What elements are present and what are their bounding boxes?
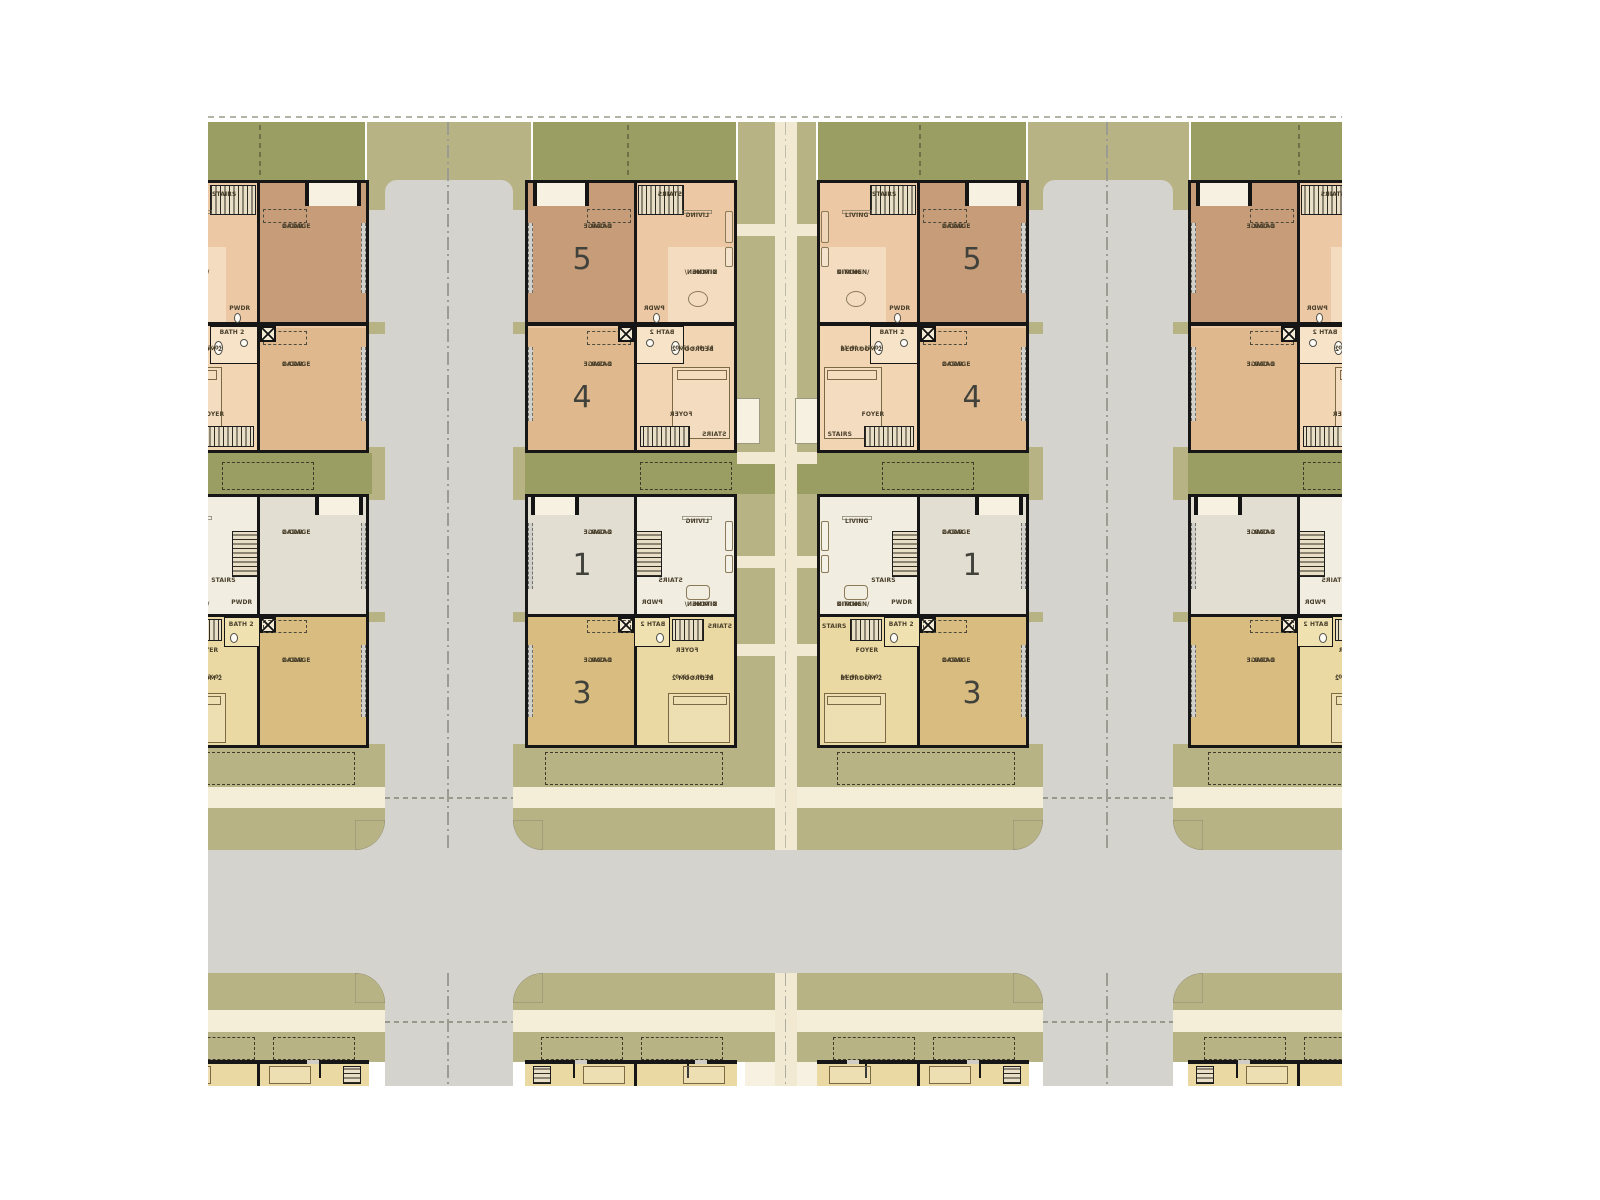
stairs-unit1	[1299, 531, 1325, 577]
paseo-branch-walk-east-0	[797, 224, 817, 236]
lot-line-dashed-1	[627, 125, 629, 177]
foyer-label-line: FOYER	[676, 647, 699, 654]
building-block-upper-col1: STAIRSLIVINGKITCHEN/DININGPWDR2-CARGARAG…	[208, 180, 369, 453]
patio-mid-yard-3	[1303, 462, 1342, 490]
bedroom2-label-line: 14'-0" x 12'-0"	[208, 675, 221, 681]
crosswalk-dash-3	[1043, 1021, 1173, 1023]
bath2-label-line: BATH 2	[889, 621, 914, 628]
stairs-unit3	[672, 619, 704, 641]
unit4-garage-label-line: GARAGE	[583, 361, 612, 368]
unit5-garage-label-line: GARAGE	[1246, 223, 1275, 230]
garage5-storage	[263, 209, 307, 223]
door-gap-2	[307, 1060, 319, 1064]
garage5-door	[361, 223, 366, 293]
stairs-upper	[638, 185, 684, 215]
stairs-unit3	[208, 619, 222, 641]
stairs-lower-label-line: STAIRS	[702, 431, 726, 438]
garage-separation-wall	[634, 183, 637, 450]
lot-line-white-2	[1026, 122, 1028, 180]
garage5-storage	[923, 209, 967, 223]
unit3-garage-number: 3	[922, 679, 1022, 709]
powder-sink	[894, 313, 901, 323]
building-block-lower-col3: LIVINGSTAIRSKITCHEN/DININGPWDR2-CARGARAG…	[817, 494, 1029, 748]
street-a-centerline	[447, 122, 449, 850]
unit1-garage-number: 1	[922, 551, 1022, 581]
bed	[208, 693, 226, 743]
bedroom2-label-line: 14'-0" x 12'-0"	[673, 675, 714, 681]
unit4-garage-fill	[259, 328, 366, 450]
unit3-garage-label-line: GARAGE	[942, 657, 971, 664]
unit5-garage-label-line: GARAGE	[583, 223, 612, 230]
garage3-storage	[587, 620, 631, 633]
bath2-label-line: BATH 2	[1313, 329, 1338, 336]
lot-line-white-3	[1189, 122, 1191, 180]
stairs-lower-label-line: STAIRS	[828, 431, 852, 438]
driveway-apron-2-1	[1026, 334, 1048, 447]
unit4-garage-fill	[1191, 328, 1298, 450]
chair	[725, 555, 733, 573]
door-gap-2	[1238, 1060, 1250, 1064]
stairs-unit1	[892, 531, 918, 577]
site-plan: STAIRSLIVINGKITCHEN/DININGPWDR2-CARGARAG…	[208, 113, 1342, 1086]
stairs-unit1-label-line: STAIRS	[871, 577, 895, 584]
unit5-kitchen-zone	[820, 247, 886, 325]
unit1-garage-label-line: GARAGE	[1246, 529, 1275, 536]
powder-sink	[1316, 313, 1323, 323]
unit3-garage-label-line: GARAGE	[282, 657, 311, 664]
driveway-apron-2-2	[1026, 500, 1048, 612]
bath2-label-line: BATH 2	[220, 329, 245, 336]
street-horizontal-pavement	[208, 850, 1342, 973]
sidewalk-north-0	[208, 787, 387, 808]
stairs-upper	[210, 185, 256, 215]
stairs-unit3-label-line: STAIRS	[822, 623, 846, 630]
stairs-upper	[1301, 185, 1342, 215]
stairs-lower	[640, 426, 690, 447]
door-gap-2	[967, 1060, 979, 1064]
door-gap-1	[847, 1060, 859, 1064]
lot-line-white-5	[816, 122, 818, 180]
bed-partial-2	[269, 1066, 311, 1084]
unit5-kitchen-zone	[208, 247, 226, 325]
kitchen-island	[686, 585, 710, 600]
powder-label-line: PWDR	[891, 599, 912, 606]
stairs-upper-label-line: STAIRS	[872, 191, 896, 198]
garage4-door	[1191, 347, 1196, 421]
living-label-line: LIVING	[845, 518, 869, 525]
crosswalk-dash-0	[385, 797, 513, 799]
patio-south-a-1	[541, 1037, 623, 1060]
building-block-upper-col4: STAIRSLIVINGKITCHEN/DININGPWDR2-CARGARAG…	[1188, 180, 1342, 453]
door-gap-1	[695, 1060, 707, 1064]
dining-table	[688, 291, 708, 307]
crosswalk-dash-2	[385, 1021, 513, 1023]
wall-stub-mid	[257, 1060, 260, 1086]
sidewalk-north-2	[1171, 787, 1342, 808]
bed-partial-1	[829, 1066, 871, 1084]
patio-mid-yard-1	[640, 462, 732, 490]
living-label: LIVING	[842, 210, 872, 214]
sofa	[725, 211, 733, 243]
unit5-kitchen-zone	[1331, 247, 1342, 325]
entry-porch-notch	[533, 183, 589, 206]
patio-south-b-0	[273, 1037, 355, 1060]
driveway-apron-0-2	[366, 500, 388, 612]
living-label: LIVING	[682, 210, 712, 214]
bedroom2-label-line: 14'-0" x 12'-0"	[1336, 675, 1342, 681]
patio-south-a-2	[833, 1037, 915, 1060]
building-block-south-col4	[1188, 1060, 1342, 1086]
kitchen-label-line: DINING	[692, 269, 717, 276]
street-b-pavement-south	[1043, 973, 1173, 1086]
bath2-sink	[230, 633, 238, 643]
stairs-partial	[533, 1066, 551, 1084]
stairs-partial	[1196, 1066, 1214, 1084]
wall-stub-b	[979, 1064, 981, 1078]
bedroom2-label-line: 11'-0" x 12'-0"	[208, 346, 221, 352]
lot-line-dashed-2	[919, 125, 921, 177]
kitchen-label-line: DINING	[837, 269, 862, 276]
wall-stub-mid	[634, 1060, 637, 1086]
front-wall	[208, 1060, 369, 1064]
garage3-door	[361, 645, 366, 717]
stairs-unit1-label-line: STAIRS	[658, 577, 682, 584]
bed-pillow	[208, 370, 217, 380]
paseo-centerline	[785, 122, 786, 850]
garage3-storage	[263, 620, 307, 633]
kitchen-label-line: DINING	[837, 601, 862, 608]
paseo-branch-walk-east-2	[797, 556, 817, 568]
kitchen-label-line: DINING	[692, 601, 717, 608]
unit3-garage-fill	[259, 617, 366, 745]
powder-label-line: PWDR	[644, 305, 665, 312]
stairs-partial	[1003, 1066, 1021, 1084]
unit5-garage-label-line: GARAGE	[282, 223, 311, 230]
unit1-garage-label-line: GARAGE	[583, 529, 612, 536]
wall-stub-b	[1236, 1064, 1238, 1078]
bedroom2-label-line: 11'-0" x 12'-0"	[1336, 346, 1342, 352]
chair	[821, 247, 829, 267]
unit5-garage-number: 5	[532, 245, 632, 275]
unit4-garage-label-line: GARAGE	[1246, 361, 1275, 368]
patio-north-band-0	[208, 752, 355, 785]
sidewalk-south-2	[1171, 1010, 1342, 1032]
street-b-centerline-south	[1106, 973, 1108, 1086]
entry-porch-notch	[975, 497, 1023, 515]
foyer-label-line: FOYER	[1333, 411, 1342, 418]
bed-pillow	[673, 696, 727, 705]
driveway-apron-0-0	[366, 210, 388, 322]
powder-label-line: PWDR	[642, 599, 663, 606]
bed-pillow	[1336, 696, 1342, 705]
kitchen-label-line: KITCHEN/	[208, 269, 209, 276]
chair	[725, 247, 733, 267]
bath2-label-line: BATH 2	[640, 621, 665, 628]
street-a-pavement	[385, 180, 513, 850]
paseo-branch-walk-west-0	[737, 224, 775, 236]
powder-sink	[653, 313, 660, 323]
bedroom2-label-line: 11'-0" x 12'-0"	[673, 346, 714, 352]
stairs-unit3	[1335, 619, 1342, 641]
garage1-door	[361, 523, 366, 589]
front-wall	[1188, 1060, 1342, 1064]
garage-separation-wall	[917, 183, 920, 450]
lot-line-white-4	[736, 122, 738, 180]
patio-north-band-3	[1208, 752, 1342, 785]
bath2-sink	[646, 339, 654, 347]
foyer-label-line: FOYER	[670, 411, 693, 418]
stairs-upper-label-line: STAIRS	[658, 191, 682, 198]
living-label-line: LIVING	[208, 212, 209, 219]
unit3-garage-number: 3	[532, 679, 632, 709]
unit3-garage-label-line: GARAGE	[583, 657, 612, 664]
bed	[1331, 693, 1342, 743]
chase-xbox	[260, 326, 276, 342]
street-a-pavement-south	[385, 973, 513, 1086]
stairs-unit3	[850, 619, 882, 641]
bath2-label-line: BATH 2	[880, 329, 905, 336]
entry-porch-notch	[1194, 497, 1242, 515]
bedroom2-label-line: 14'-0" x 12'-0"	[840, 675, 881, 681]
bath2-label-line: BATH 2	[229, 621, 254, 628]
wall-stub-mid	[1297, 1060, 1300, 1086]
lot-line-dashed-3	[1298, 125, 1300, 177]
stairs-unit3-label-line: STAIRS	[708, 623, 732, 630]
foyer-label-line: FOYER	[208, 647, 218, 654]
building-block-lower-col1: LIVINGSTAIRSKITCHEN/DININGPWDR2-CARGARAG…	[208, 494, 369, 748]
bed-pillow	[1340, 370, 1342, 380]
street-b-centerline	[1106, 122, 1108, 850]
chase-xbox	[920, 326, 936, 342]
unit4-garage-number: 4	[922, 383, 1022, 413]
patio-south-a-0	[208, 1037, 255, 1060]
unit5-garage-number: 5	[922, 245, 1022, 275]
building-block-lower-col4: LIVINGSTAIRSKITCHEN/DININGPWDR2-CARGARAG…	[1188, 494, 1342, 748]
garage1-door	[1191, 523, 1196, 589]
bed-partial-2	[929, 1066, 971, 1084]
stairs-upper-label-line: STAIRS	[212, 191, 236, 198]
patio-south-b-3	[1304, 1037, 1342, 1060]
sofa	[725, 521, 733, 551]
bath2-sink	[240, 339, 248, 347]
unit3-garage-fill	[1191, 617, 1298, 745]
powder-label-line: PWDR	[1307, 305, 1328, 312]
paseo-branch-walk-west-1	[737, 452, 775, 464]
patio-north-band-1	[545, 752, 723, 785]
bed-partial-1	[683, 1066, 725, 1084]
kitchen-label-line: KITCHEN/	[208, 601, 209, 608]
unit1-garage-number: 1	[532, 551, 632, 581]
powder-label-line: PWDR	[1305, 599, 1326, 606]
living-label: LIVING	[208, 210, 212, 214]
building-block-upper-col2: STAIRSLIVINGKITCHEN/DININGPWDR2-CARGARAG…	[525, 180, 737, 453]
unit1-garage-label-line: GARAGE	[282, 529, 311, 536]
living-label: LIVING	[682, 516, 712, 520]
unit1-garage-label-line: GARAGE	[942, 529, 971, 536]
unit3-garage-label-line: GARAGE	[1246, 657, 1275, 664]
patio-mid-yard-2	[882, 462, 974, 490]
patio-north-band-2	[837, 752, 1015, 785]
bed-partial-1	[208, 1066, 211, 1084]
bath2-sink	[656, 633, 664, 643]
bed-partial-2	[1246, 1066, 1288, 1084]
paseo-branch-walk-west-3	[737, 644, 775, 656]
plan-edge-dashed-line	[208, 116, 1342, 118]
living-label-line: LIVING	[685, 518, 709, 525]
garage3-door	[1191, 645, 1196, 717]
bath2-sink	[1319, 633, 1327, 643]
door-gap-2	[575, 1060, 587, 1064]
powder-label-line: PWDR	[231, 599, 252, 606]
garage3-storage	[1250, 620, 1294, 633]
wall-stub-mid	[917, 1060, 920, 1086]
powder-label-line: PWDR	[889, 305, 910, 312]
street-a-centerline-south	[447, 973, 449, 1086]
bedroom2-label-line: 11'-0" x 12'-0"	[840, 346, 881, 352]
entry-porch-notch	[965, 183, 1021, 206]
living-label-line: LIVING	[845, 212, 869, 219]
lot-line-white-0	[365, 122, 367, 180]
driveway-apron-0-3	[366, 622, 388, 744]
paseo-branch-walk-east-3	[797, 644, 817, 656]
bath2-label-line: BATH 2	[1303, 621, 1328, 628]
lot-line-white-1	[531, 122, 533, 180]
paseo-centerline-south	[785, 973, 786, 1086]
dining-table	[846, 291, 866, 307]
bath2-sink	[1309, 339, 1317, 347]
paseo-branch-walk-west-2	[737, 556, 775, 568]
stairs-unit1-label-line: STAIRS	[211, 577, 235, 584]
building-block-south-col1	[208, 1060, 369, 1086]
garage-separation-wall	[1297, 183, 1300, 450]
stairs-upper-label-line: STAIRS	[1321, 191, 1342, 198]
living-label: LIVING	[208, 516, 212, 520]
bed-pillow	[677, 370, 727, 380]
building-block-upper-col3: STAIRSLIVINGKITCHEN/DININGPWDR2-CARGARAG…	[817, 180, 1029, 453]
living-label: LIVING	[842, 516, 872, 520]
unit5-garage-label-line: GARAGE	[942, 223, 971, 230]
garage-separation-wall	[257, 183, 260, 450]
chase-xbox	[618, 326, 634, 342]
stairs-unit1	[636, 531, 662, 577]
garage3-storage	[923, 620, 967, 633]
building-block-lower-col2: LIVINGSTAIRSKITCHEN/DININGPWDR2-CARGARAG…	[525, 494, 737, 748]
unit4-garage-label-line: GARAGE	[282, 361, 311, 368]
living-label-line: LIVING	[685, 212, 709, 219]
foyer-label-line: FOYER	[208, 411, 224, 418]
building-block-south-col2	[525, 1060, 737, 1086]
driveway-apron-2-3	[1026, 622, 1048, 744]
wall-stub-b	[319, 1064, 321, 1078]
bath2-sink	[890, 633, 898, 643]
south-porch-west	[745, 1062, 775, 1086]
garage5-door	[1191, 223, 1196, 293]
chair	[821, 555, 829, 573]
powder-sink	[234, 313, 241, 323]
entry-porch-notch	[531, 497, 579, 515]
unit4-garage-label-line: GARAGE	[942, 361, 971, 368]
stairs-unit1	[232, 531, 258, 577]
bath2-label-line: BATH 2	[650, 329, 675, 336]
patio-south-b-2	[933, 1037, 1015, 1060]
powder-label-line: PWDR	[229, 305, 250, 312]
stairs-lower	[864, 426, 914, 447]
foyer-label-line: FOYER	[1339, 647, 1342, 654]
entry-porch-notch	[305, 183, 361, 206]
patio-south-b-1	[641, 1037, 723, 1060]
sofa	[821, 211, 829, 243]
entry-porch-notch	[315, 497, 363, 515]
stairs-partial	[343, 1066, 361, 1084]
stairs-lower	[1303, 426, 1342, 447]
patio-mid-yard-0	[222, 462, 314, 490]
foyer-label-line: FOYER	[862, 411, 885, 418]
sidewalk-south-0	[208, 1010, 387, 1032]
foyer-label-line: FOYER	[856, 647, 879, 654]
garage4-door	[361, 347, 366, 421]
driveway-apron-2-0	[1026, 210, 1048, 322]
sofa	[821, 521, 829, 551]
bed	[668, 693, 730, 743]
stairs-lower	[208, 426, 254, 447]
patio-south-a-3	[1204, 1037, 1286, 1060]
garage5-storage	[1250, 209, 1294, 223]
living-label-line: LIVING	[208, 518, 209, 525]
crosswalk-dash-1	[1043, 797, 1173, 799]
building-block-south-col3	[817, 1060, 1029, 1086]
paseo-branch-walk-east-1	[797, 452, 817, 464]
bed-pillow	[827, 696, 881, 705]
garage5-storage	[587, 209, 631, 223]
street-b-pavement	[1043, 180, 1173, 850]
chase-xbox	[1281, 326, 1297, 342]
wall-stub-b	[573, 1064, 575, 1078]
driveway-apron-0-1	[366, 334, 388, 447]
entry-porch-notch	[1196, 183, 1252, 206]
stairs-upper	[870, 185, 916, 215]
bed	[824, 693, 886, 743]
stairs-unit1-label-line: STAIRS	[1321, 577, 1342, 584]
bed-pillow	[827, 370, 877, 380]
kitchen-island	[844, 585, 868, 600]
bath2-sink	[900, 339, 908, 347]
lot-line-dashed-0	[259, 125, 261, 177]
bed-partial-2	[583, 1066, 625, 1084]
bed-pillow	[208, 696, 221, 705]
unit4-garage-number: 4	[532, 383, 632, 413]
